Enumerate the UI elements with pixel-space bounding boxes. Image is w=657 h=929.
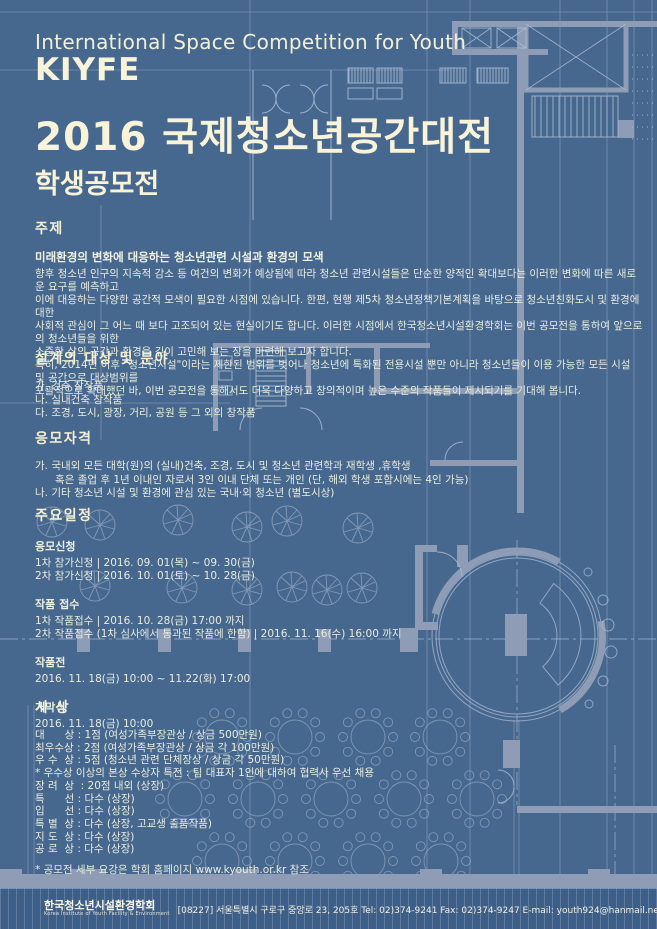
schedule-heading: 주요일정 [35,505,643,525]
section-eligibility: 응모자격 가. 국내외 모든 대학(원)의 (실내)건축, 조경, 도시 및 청… [35,428,643,501]
theme-body-line: 이에 대응하는 다양한 공간적 모색이 필요한 시점에 있습니다. 한편, 현행… [35,294,643,320]
award-item: * 우수상 이상의 본상 수상자 특전 : 팀 대표자 1인에 대하여 협력사 … [35,767,643,780]
schedule-group-exhibition: 작품전 2016. 11. 18(금) 10:00 ~ 11.22(화) 17:… [35,654,643,686]
award-item: 공 로 상 : 다수 (상장) [35,843,643,856]
fields-item: 나. 실내건축 창작품 [35,394,643,408]
fields-item: 다. 조경, 도시, 광장, 거리, 공원 등 그 외의 창작품 [35,407,643,421]
schedule-line: 1차 참가신청 | 2016. 09. 01(목) ~ 09. 30(금) [35,557,643,570]
footer-address: [08227] 서울특별시 구로구 중앙로 23, 205호 Tel: 02)3… [178,903,657,916]
poster-subtitle-en: International Space Competition for Yout… [35,30,643,54]
theme-heading: 주제 [35,218,643,238]
poster-acronym: KIYFE [35,52,643,88]
award-item: 특 선 : 다수 (상장) [35,793,643,806]
footer-org: 한국청소년시설환경학회 Korea Institute of Youth Fac… [44,900,170,918]
award-item: 특 별 상 : 다수 (상장, 고교생 출품작품) [35,818,643,831]
award-item: 우 수 상 : 5점 (청소년 관련 단체장상 / 상금 각 50만원) [35,754,643,767]
org-name-en: Korea Institute of Youth Facility & Envi… [44,912,170,918]
schedule-line: 2차 참가신청 | 2016. 10. 01(토) ~ 10. 28(금) [35,570,643,583]
section-awards: 시 상 대 상 : 1점 (여성가족부장관상 / 상금 500만원) 최우수상 … [35,697,643,877]
schedule-group-submission: 작품 접수 1차 작품접수 | 2016. 10. 28(금) 17:00 까지… [35,596,643,641]
schedule-line: 2차 작품접수 (1차 심사에서 통과된 작품에 한함) | 2016. 11.… [35,628,643,641]
eligibility-item: 나. 기타 청소년 시설 및 환경에 관심 있는 국내·외 청소년 (별도시상) [35,487,643,501]
poster-subtitle-ko: 학생공모전 [35,162,643,201]
theme-body-line: 사회적 관심이 그 어느 때 보다 고조되어 있는 현실이기도 합니다. 이러한… [35,320,643,346]
eligibility-heading: 응모자격 [35,428,643,448]
awards-heading: 시 상 [35,697,643,717]
award-item: 지 도 상 : 다수 (상장) [35,831,643,844]
award-item: 대 상 : 1점 (여성가족부장관상 / 상금 500만원) [35,729,643,742]
theme-lead: 미래환경의 변화에 대응하는 청소년관련 시설과 환경의 모색 [35,249,643,265]
fields-heading: 설계의 대상 및 분야 [35,348,643,368]
schedule-group-title: 작품전 [35,654,643,670]
schedule-group-title: 응모신청 [35,538,643,554]
schedule-group-application: 응모신청 1차 참가신청 | 2016. 09. 01(목) ~ 09. 30(… [35,538,643,583]
section-fields: 설계의 대상 및 분야 가. 건축 창작품 나. 실내건축 창작품 다. 조경,… [35,348,643,421]
schedule-line: 1차 작품접수 | 2016. 10. 28(금) 17:00 까지 [35,615,643,628]
eligibility-item: 혹은 졸업 후 1년 이내인 자로서 3인 이내 단체 또는 개인 (단, 해외… [35,474,643,488]
fields-item: 가. 건축 창작품 [35,380,643,394]
award-item: 입 선 : 다수 (상장) [35,805,643,818]
poster: International Space Competition for Yout… [0,0,657,929]
footer-bar: 한국청소년시설환경학회 Korea Institute of Youth Fac… [0,888,657,929]
awards-footnote: * 공모전 세부 요강은 학회 홈페이지 www.kyouth.or.kr 참조 [35,862,643,877]
poster-title-ko: 2016 국제청소년공간대전 [35,106,643,162]
theme-body-line: 향후 청소년 인구의 지속적 감소 등 여건의 변화가 예상됨에 따라 청소년 … [35,268,643,294]
award-item: 장 려 상 : 20점 내외 (상장) [35,780,643,793]
schedule-line: 2016. 11. 18(금) 10:00 ~ 11.22(화) 17:00 [35,673,643,686]
schedule-group-title: 작품 접수 [35,596,643,612]
award-item: 최우수상 : 2점 (여성가족부장관상 / 상금 각 100만원) [35,742,643,755]
eligibility-item: 가. 국내외 모든 대학(원)의 (실내)건축, 조경, 도시 및 청소년 관련… [35,460,643,474]
